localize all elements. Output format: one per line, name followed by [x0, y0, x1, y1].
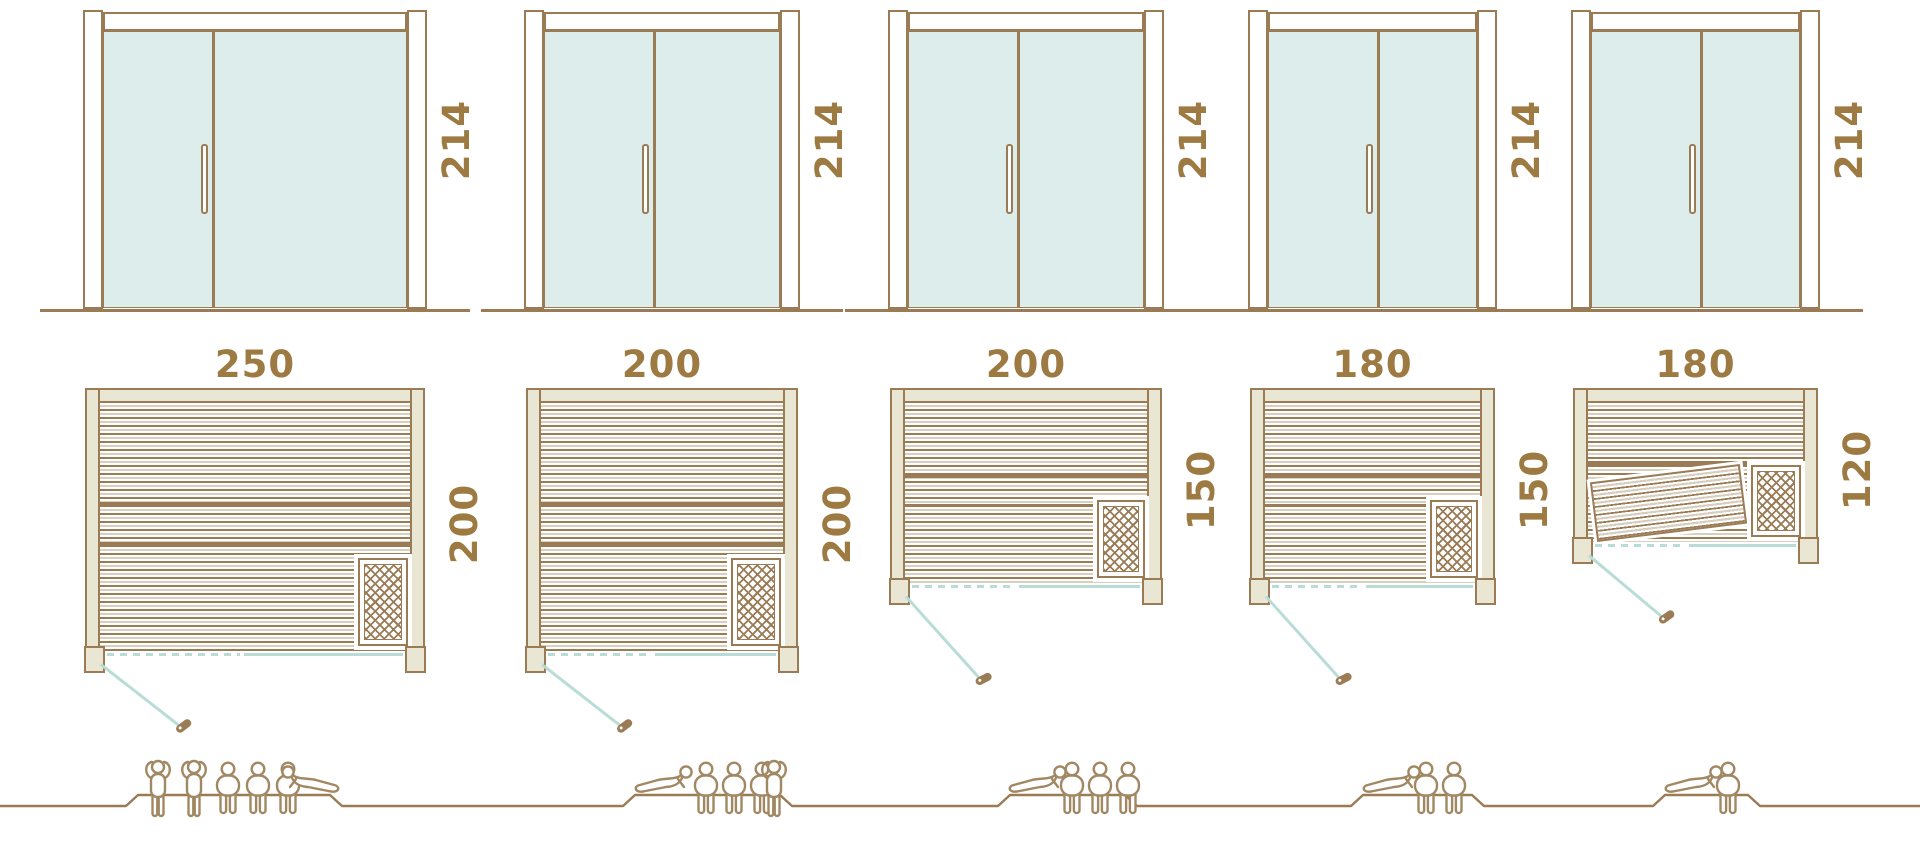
door-handle [201, 144, 208, 214]
plan-wall-left [1573, 388, 1588, 551]
plan-wall-left [526, 388, 541, 660]
door-swing-line [905, 595, 984, 682]
bench-edge-line [100, 502, 410, 505]
plan-foot-right [405, 646, 426, 673]
dimension-label-door-height: 214 [809, 65, 851, 215]
door-swing-handle-dot [1661, 617, 1665, 621]
plan-foot-left [1249, 578, 1270, 605]
plan-wall-left [85, 388, 100, 660]
heater-grill [1436, 506, 1472, 572]
door-swing-line [541, 663, 624, 729]
door-frame-post-right [407, 10, 427, 309]
heater-grill [364, 564, 402, 640]
person-sitting-icon [1438, 761, 1474, 825]
door-frame-post-left [1248, 10, 1268, 309]
door-closed-dashed-line [1595, 544, 1685, 547]
plan-foot-right [1475, 578, 1496, 605]
door-frame-post-right [1477, 10, 1497, 309]
glass-panel [908, 31, 1144, 308]
door-lintel [1268, 12, 1477, 31]
plan-foot-right [1798, 537, 1819, 564]
dimension-label-width: 250 [170, 344, 340, 386]
door-divider-line [653, 31, 656, 308]
plan-wall-left [1250, 388, 1265, 592]
door-swing-handle [1657, 609, 1675, 625]
door-swing-handle-dot [619, 726, 623, 730]
glass-panel [103, 31, 407, 308]
door-swing-handle [174, 718, 192, 734]
door-divider-line [1017, 31, 1020, 308]
plan-wall-top [1573, 388, 1818, 403]
door-elevation-5 [1571, 10, 1820, 11]
ground-baseline [1205, 309, 1540, 312]
door-swing-line [1265, 595, 1344, 682]
glass-front-line [1366, 585, 1473, 588]
glass-front-line [244, 653, 403, 656]
ground-baseline [481, 309, 843, 312]
door-swing-handle [615, 718, 633, 734]
dimension-label-door-height: 214 [1173, 65, 1215, 215]
dimension-label-door-height: 214 [1506, 65, 1548, 215]
glass-panel [544, 31, 780, 308]
door-frame-post-left [1571, 10, 1591, 309]
person-standing-icon [140, 758, 176, 822]
door-closed-dashed-line [1272, 585, 1362, 588]
plan-wall-top [85, 388, 425, 403]
door-frame-post-right [780, 10, 800, 309]
bench-edge-line [1265, 475, 1480, 478]
door-lintel [1591, 12, 1800, 31]
plan-foot-left [889, 578, 910, 605]
door-lintel [908, 12, 1144, 31]
ground-baseline [845, 309, 1207, 312]
door-frame-post-left [888, 10, 908, 309]
heater-grill [1757, 471, 1795, 531]
dimension-label-width: 200 [577, 344, 747, 386]
plan-wall-right [783, 388, 798, 660]
bench-edge-line [541, 542, 783, 545]
plan-wall-right [410, 388, 425, 660]
door-swing-handle-dot [178, 726, 182, 730]
dimension-label-depth: 120 [1837, 395, 1879, 545]
dimension-label-depth: 150 [1181, 415, 1223, 565]
door-frame-post-left [524, 10, 544, 309]
sauna-size-diagram: 2142502002142002002142001502141801502141… [0, 0, 1920, 843]
door-swing-line [1588, 554, 1666, 620]
dimension-label-depth: 200 [817, 449, 859, 599]
bench-edge-line [100, 542, 410, 545]
ground-baseline [40, 309, 470, 312]
door-handle [1366, 144, 1373, 214]
plan-foot-left [1572, 537, 1593, 564]
door-swing-handle-dot [1338, 679, 1342, 683]
plan-foot-left [84, 646, 105, 673]
door-frame-post-right [1144, 10, 1164, 309]
door-divider-line [212, 31, 215, 308]
glass-front-line [1689, 544, 1796, 547]
dimension-label-depth: 150 [1514, 415, 1556, 565]
door-elevation-1 [83, 10, 427, 11]
person-sitting-icon [1712, 761, 1748, 825]
plan-wall-left [890, 388, 905, 592]
door-swing-handle-dot [978, 679, 982, 683]
door-divider-line [1377, 31, 1380, 308]
door-swing-line [100, 663, 183, 729]
person-reclining-icon [278, 763, 346, 827]
plan-wall-right [1480, 388, 1495, 592]
glass-front-line [1019, 585, 1140, 588]
plan-foot-right [1142, 578, 1163, 605]
person-standing-icon [756, 758, 792, 822]
door-handle [1006, 144, 1013, 214]
plan-wall-top [890, 388, 1162, 403]
plan-foot-right [778, 646, 799, 673]
door-divider-line [1700, 31, 1703, 308]
door-closed-dashed-line [548, 653, 651, 656]
heater-grill [1103, 506, 1139, 572]
dimension-label-width: 180 [1288, 344, 1458, 386]
dimension-label-door-height: 214 [436, 65, 478, 215]
door-lintel [544, 12, 780, 31]
door-handle [642, 144, 649, 214]
door-elevation-4 [1248, 10, 1497, 11]
door-elevation-3 [888, 10, 1164, 11]
plan-wall-right [1803, 388, 1818, 551]
door-frame-post-right [1800, 10, 1820, 309]
door-closed-dashed-line [912, 585, 1015, 588]
door-frame-post-left [83, 10, 103, 309]
dimension-label-door-height: 214 [1829, 65, 1871, 215]
glass-front-line [655, 653, 776, 656]
person-standing-icon [176, 758, 212, 822]
plan-foot-left [525, 646, 546, 673]
plan-wall-top [1250, 388, 1495, 403]
door-elevation-2 [524, 10, 800, 11]
person-reclining-icon [628, 763, 696, 827]
bench-edge-line [541, 502, 783, 505]
bench-edge-line [905, 475, 1147, 478]
door-closed-dashed-line [107, 653, 240, 656]
dimension-label-width: 180 [1611, 344, 1781, 386]
plan-wall-top [526, 388, 798, 403]
plan-wall-right [1147, 388, 1162, 592]
heater-grill [737, 564, 775, 640]
dimension-label-depth: 200 [444, 449, 486, 599]
person-sitting-icon [1112, 761, 1148, 825]
dimension-label-width: 200 [941, 344, 1111, 386]
door-handle [1689, 144, 1696, 214]
door-lintel [103, 12, 407, 31]
ground-baseline [1528, 309, 1863, 312]
